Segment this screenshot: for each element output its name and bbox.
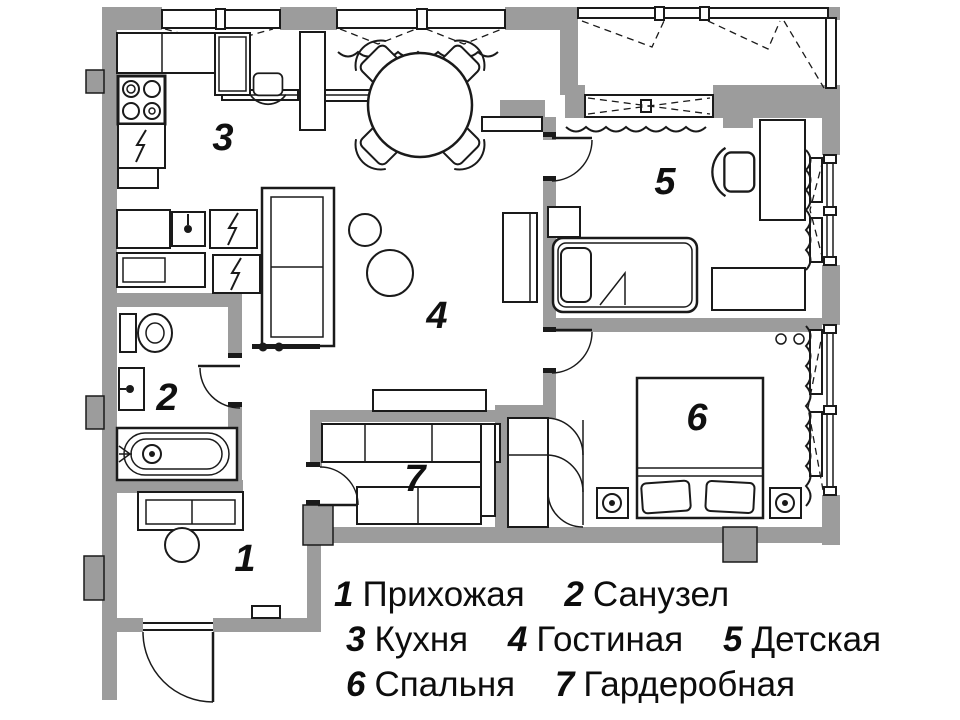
entry-door bbox=[143, 623, 213, 702]
pillow bbox=[561, 248, 591, 302]
ceiling-light bbox=[794, 334, 804, 344]
kitchen-sink bbox=[172, 212, 205, 246]
curtain-wave bbox=[806, 326, 811, 506]
wardrobe-shelves bbox=[322, 424, 500, 462]
room-label-1: 1 bbox=[234, 538, 255, 580]
nightstand-right bbox=[770, 488, 801, 518]
legend-item-4: 4Гостиная bbox=[508, 620, 683, 659]
legend-item-6: 6Спальня bbox=[346, 665, 515, 704]
desk bbox=[760, 120, 805, 220]
kitchen-lower-counter bbox=[117, 210, 170, 248]
children-room bbox=[548, 120, 805, 312]
bathroom bbox=[117, 314, 240, 480]
doormat bbox=[252, 606, 280, 618]
pillow bbox=[705, 481, 755, 513]
room-label-7: 7 bbox=[404, 458, 427, 500]
sofa bbox=[262, 188, 334, 346]
kitchen-counter bbox=[117, 33, 215, 73]
wardrobe-door bbox=[318, 467, 358, 505]
legend-item-2: 2Санузел bbox=[564, 575, 729, 614]
master-bedroom-door bbox=[552, 330, 592, 373]
pillow bbox=[641, 480, 691, 513]
side-table bbox=[349, 214, 381, 246]
dining-table bbox=[368, 53, 472, 157]
closet bbox=[508, 418, 583, 527]
legend-item-5: 5Детская bbox=[723, 620, 881, 659]
legend-item-3: 3Кухня bbox=[346, 620, 468, 659]
bedside-shelf bbox=[548, 207, 580, 237]
side-table bbox=[367, 250, 413, 296]
right-window-children bbox=[806, 150, 836, 270]
window-sill-cabinet bbox=[482, 117, 542, 131]
shoe-cabinet bbox=[138, 492, 243, 530]
balcony-glazing bbox=[578, 7, 836, 88]
single-bed bbox=[553, 238, 697, 312]
bathtub bbox=[117, 428, 237, 480]
mirror bbox=[165, 528, 199, 562]
children-room-window bbox=[566, 95, 713, 132]
ceiling-light bbox=[776, 334, 786, 344]
bathroom-door bbox=[198, 366, 240, 408]
console-table bbox=[373, 390, 486, 411]
tall-cabinet bbox=[300, 32, 325, 130]
tv-unit bbox=[503, 213, 537, 302]
dining-set bbox=[348, 33, 492, 177]
right-window-master bbox=[806, 325, 836, 506]
room-label-3: 3 bbox=[212, 117, 233, 159]
master-bedroom bbox=[508, 334, 804, 527]
room-label-5: 5 bbox=[654, 161, 676, 203]
room-label-2: 2 bbox=[155, 377, 177, 419]
dresser bbox=[712, 268, 805, 310]
bathroom-sink bbox=[119, 368, 144, 410]
stove bbox=[118, 76, 165, 124]
desk-chair bbox=[712, 148, 754, 196]
toilet bbox=[120, 314, 172, 352]
curtain-wave bbox=[566, 127, 706, 132]
fridge bbox=[215, 33, 250, 95]
living-room bbox=[252, 117, 542, 411]
nightstand-left bbox=[597, 488, 628, 518]
room-label-4: 4 bbox=[425, 295, 447, 337]
legend-item-7: 7Гардеробная bbox=[555, 665, 795, 704]
floor-plan-page: 1 2 3 4 5 6 7 1Прихожая 2Санузел 3Кухня … bbox=[0, 0, 960, 720]
children-room-door bbox=[552, 138, 592, 181]
legend: 1Прихожая 2Санузел 3Кухня 4Гостиная 5Дет… bbox=[334, 572, 911, 707]
room-label-6: 6 bbox=[686, 397, 708, 439]
legend-item-1: 1Прихожая bbox=[334, 575, 525, 614]
hallway bbox=[138, 492, 280, 702]
